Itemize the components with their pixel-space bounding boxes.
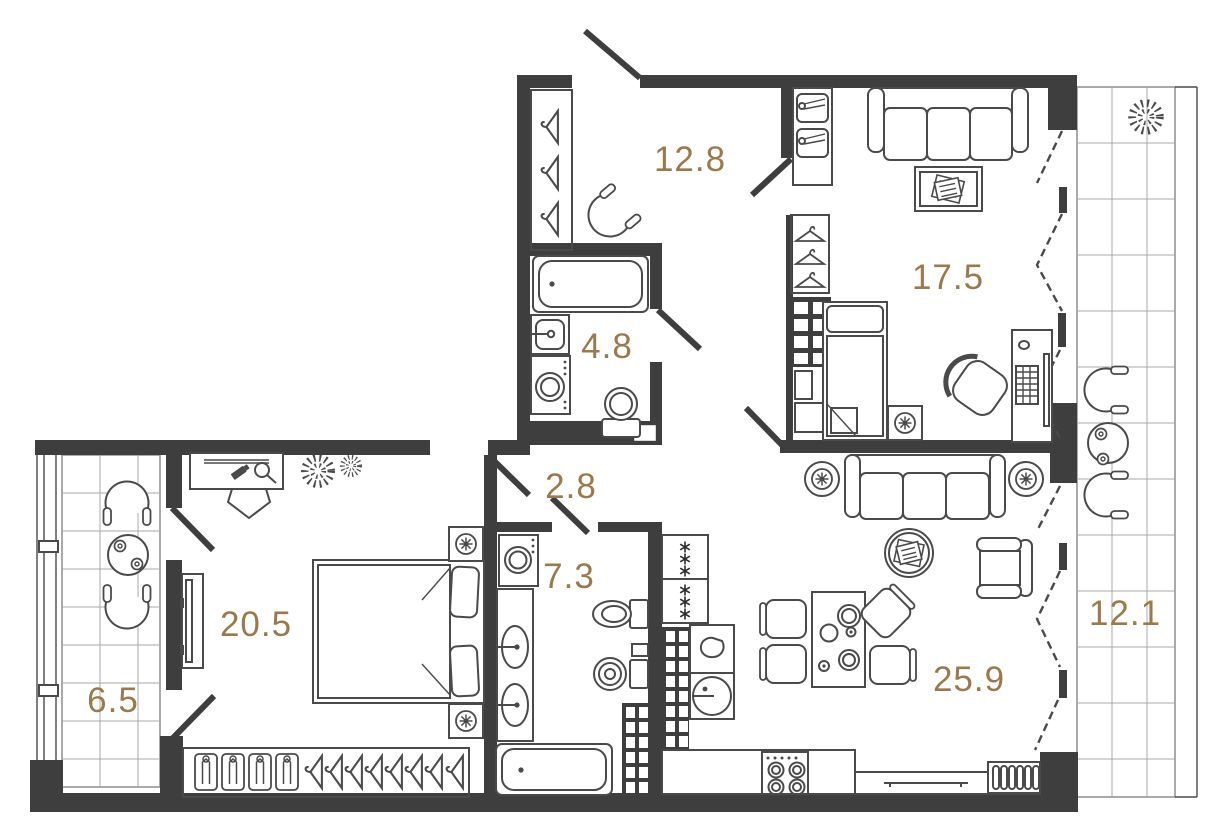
- dressing-stool: [228, 489, 270, 518]
- folded-clothes-icon: [249, 754, 271, 790]
- double-bed: [313, 560, 484, 703]
- wardrobe-main: [183, 748, 469, 797]
- room-label-bedroom-main: 20.5: [220, 605, 292, 644]
- bidet: [594, 644, 648, 690]
- washing-machine-lower: [499, 535, 538, 586]
- toilet-upper: [602, 388, 640, 437]
- dining-chair-left-1: [760, 600, 806, 638]
- fridge: [662, 535, 708, 623]
- plant-icon: [1016, 469, 1036, 489]
- room-label-bedroom-upper: 17.5: [912, 258, 984, 297]
- coffee-table-living: [885, 529, 933, 577]
- balcony-right: [1077, 87, 1197, 797]
- door-balcony-bottom: [172, 696, 214, 739]
- side-table-right: [1009, 462, 1043, 496]
- plant-large: [305, 458, 331, 484]
- floor-plan: 12.8 17.5 4.8 2.8 7.3 20.5 6.5 25.9 12.1: [0, 0, 1220, 827]
- balcony-table: [108, 535, 148, 575]
- desk: [1012, 330, 1052, 442]
- hanger-icon: [447, 756, 463, 788]
- wardrobe-upper: [791, 215, 829, 293]
- hall-wardrobe: [531, 90, 572, 250]
- room-label-kitchen-living: 25.9: [933, 660, 1005, 699]
- dressing-table: [190, 453, 283, 489]
- balcony-left-glazing: [37, 455, 58, 762]
- bathtub-upper: [533, 256, 648, 312]
- coffee-table-upper: [915, 167, 982, 211]
- room-label-bathroom-lower: 7.3: [543, 557, 595, 596]
- dining-chair-right: [870, 646, 916, 684]
- hanger-icon: [542, 203, 558, 235]
- kitchen-sink: [690, 673, 734, 719]
- armchair-living: [977, 538, 1032, 598]
- plant-icon: [456, 534, 476, 554]
- toilet-lower: [593, 600, 648, 628]
- balcony-right-table: [1088, 423, 1128, 465]
- kitchen-living: [662, 455, 1043, 797]
- kettle-unit: [690, 625, 734, 673]
- sofa-upper: [868, 88, 1028, 160]
- washing-machine-upper: [531, 356, 570, 414]
- dining-chair-left-2: [760, 645, 806, 683]
- nightstand-top: [449, 527, 483, 561]
- entrance-door: [585, 31, 640, 78]
- hanger-icon: [346, 756, 362, 788]
- dining-chair-corner: [858, 581, 917, 640]
- door-bathroom-upper: [658, 310, 700, 349]
- plant-small: [342, 457, 359, 474]
- balcony-right-glazing: [1175, 87, 1197, 797]
- tv-panel: [180, 574, 203, 668]
- hanger-icon: [306, 756, 322, 788]
- balcony-chair-top: [104, 481, 151, 525]
- room-label-corridor: 2.8: [545, 467, 597, 506]
- balcony-left: [37, 455, 160, 787]
- hanger-icon: [542, 111, 558, 143]
- kitchen-counter: [662, 750, 1040, 794]
- hall-armchair: [578, 183, 642, 247]
- plant-icon: [895, 413, 915, 433]
- shaft-left: [622, 703, 650, 797]
- stove: [762, 752, 808, 795]
- floor-plan-canvas: 12.8 17.5 4.8 2.8 7.3 20.5 6.5 25.9 12.1: [0, 0, 1220, 827]
- sofa-living: [845, 455, 1005, 519]
- vanity-double-sink: [497, 589, 533, 741]
- folded-clothes-icon: [222, 754, 244, 790]
- room-label-balcony-left: 6.5: [87, 681, 139, 720]
- door-balcony-top: [172, 508, 213, 550]
- hanger-icon: [406, 756, 422, 788]
- balcony-right-chair-bottom: [1084, 472, 1128, 519]
- hanger-icon: [326, 756, 342, 788]
- sink-upper: [531, 315, 569, 354]
- dining-table: [812, 592, 865, 687]
- room-label-bathroom-upper: 4.8: [581, 327, 633, 366]
- bedside-table-upper: [888, 406, 922, 440]
- office-chair: [937, 348, 1013, 421]
- folded-clothes-icon: [195, 754, 217, 790]
- dish-rack: [988, 762, 1040, 793]
- hanger-icon: [386, 756, 402, 788]
- balcony-right-chair-top: [1084, 367, 1128, 414]
- plant-icon: [812, 469, 832, 489]
- plant-icon: [456, 711, 476, 731]
- single-bed: [823, 302, 887, 440]
- door-bedroom-upper: [752, 159, 791, 195]
- shoe-cabinet: [793, 88, 832, 185]
- hanger-icon: [426, 756, 442, 788]
- room-label-balcony-right: 12.1: [1089, 594, 1161, 633]
- room-label-hallway: 12.8: [654, 140, 726, 179]
- bathtub-lower: [496, 744, 612, 795]
- hanger-icon: [366, 756, 382, 788]
- hanger-icon: [542, 157, 558, 189]
- nightstand-bottom: [449, 704, 483, 738]
- door-kitchen-living: [746, 408, 783, 446]
- balcony-chair-bottom: [104, 585, 151, 629]
- balcony-right-plant: [1132, 103, 1160, 131]
- folded-clothes-icon: [276, 754, 298, 790]
- side-table-left: [805, 462, 839, 496]
